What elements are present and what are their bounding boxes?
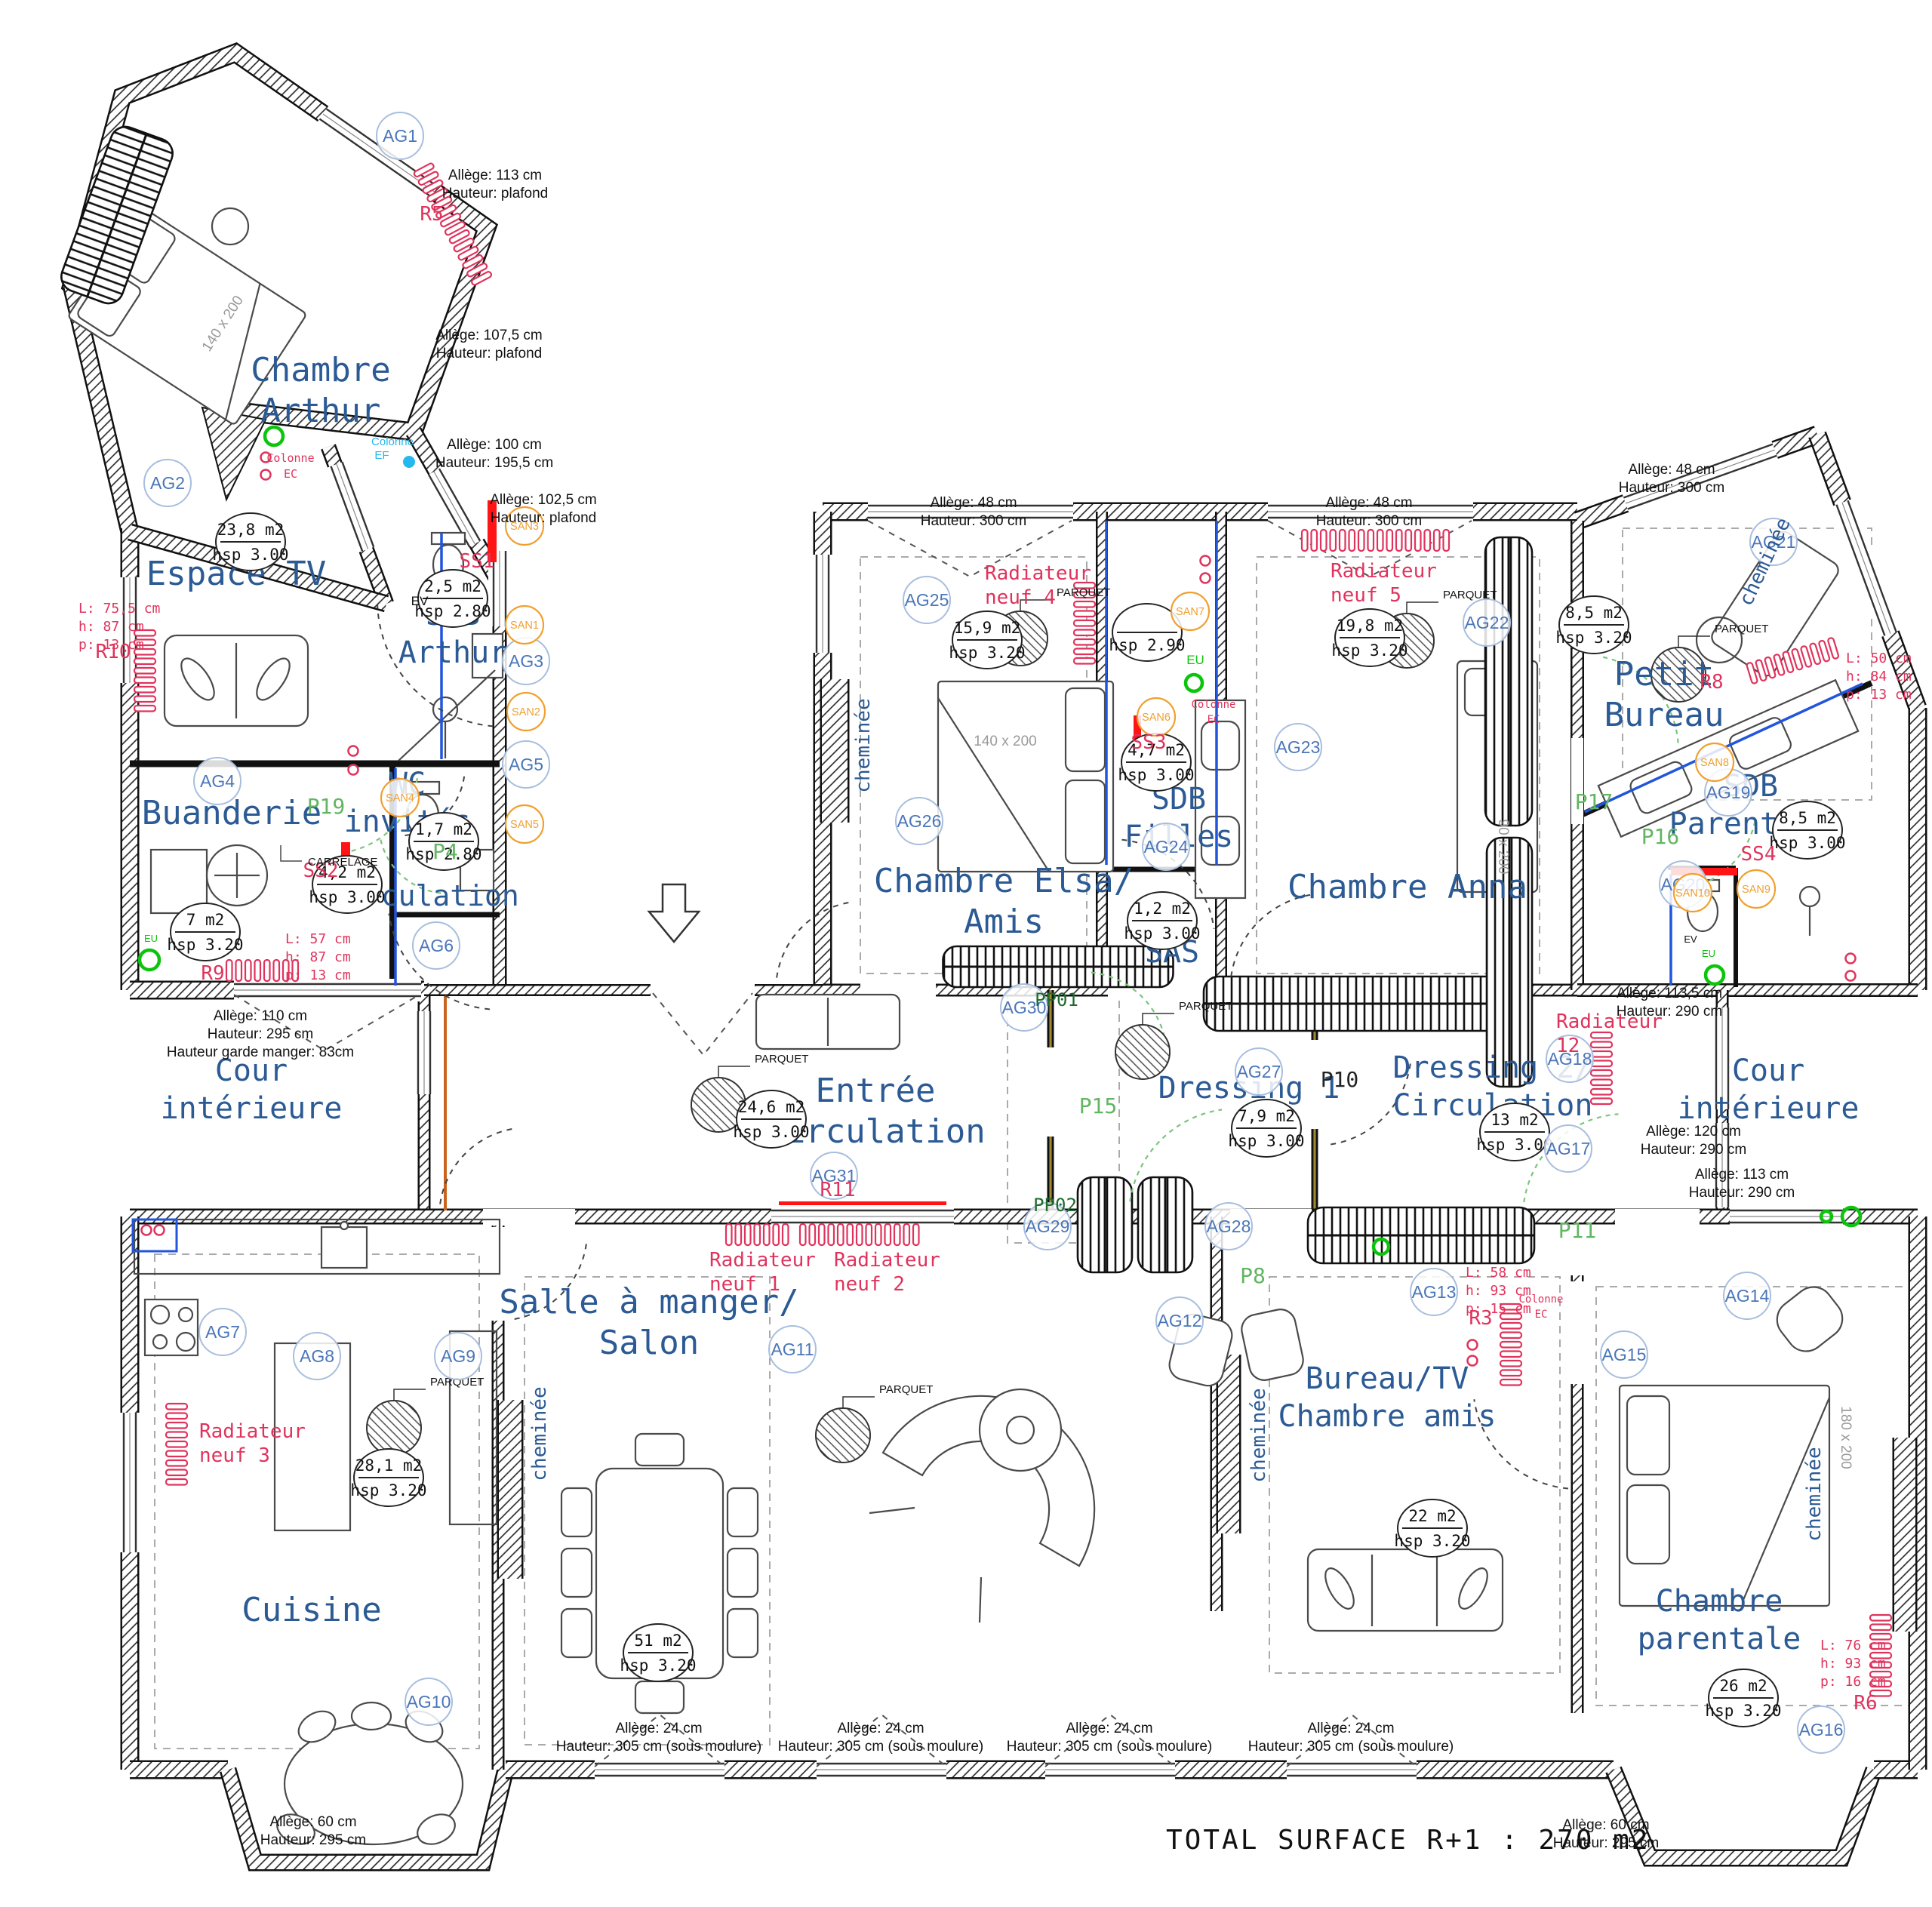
door-code-green: P15: [1079, 1093, 1118, 1118]
hsp-value: hsp 3.00: [1769, 834, 1845, 852]
red-annotation-line: SS1: [460, 550, 495, 573]
radiator-fin: [1074, 630, 1095, 636]
wardrobe-rack: [1078, 1177, 1132, 1272]
san-marker: SAN7: [1171, 592, 1209, 630]
radiator-fin: [866, 1224, 872, 1245]
radiator-fin: [1387, 530, 1393, 551]
door-opening: [1571, 1281, 1584, 1384]
radiator-fin: [245, 960, 251, 981]
room-label-line: Cour: [1732, 1053, 1804, 1088]
window: [1730, 1205, 1843, 1228]
ag-marker: AG24: [1143, 823, 1189, 870]
red-annotation: R11: [820, 1179, 856, 1201]
san-marker-id: SAN2: [512, 706, 540, 718]
san-marker-id: SAN9: [1742, 884, 1770, 896]
door-swing-arc: [1231, 894, 1313, 977]
window-note-line: Allège: 113 cm: [448, 168, 542, 183]
hsp-value: hsp 3.20: [949, 644, 1025, 662]
red-annotation-line: L: 50 cm: [1846, 651, 1912, 666]
window-note-line: Hauteur: 295 cm: [260, 1832, 366, 1848]
hsp-value: hsp 3.00: [212, 546, 288, 564]
radiator-fin: [885, 1224, 891, 1245]
ag-marker: AG16: [1798, 1706, 1844, 1753]
wardrobe-rack: [1138, 1177, 1192, 1272]
red-annotation: R8: [1700, 671, 1723, 694]
panel-code: PP02: [1033, 1195, 1077, 1216]
window-note-line: Hauteur: 300 cm: [1619, 480, 1724, 496]
colonne-dot: [349, 746, 358, 756]
window-note-line: Hauteur: 290 cm: [1617, 1004, 1722, 1020]
radiator-fin: [1500, 1352, 1521, 1358]
hsp-value: hsp 3.20: [1555, 629, 1632, 647]
window-note: Allège: 24 cmHauteur: 305 cm (sous moulu…: [556, 1721, 761, 1755]
ag-marker: AG3: [503, 638, 549, 684]
radiator-fin: [1312, 530, 1318, 551]
room-label: Chambreparentale: [1638, 1584, 1801, 1656]
radiator-fin: [800, 1224, 806, 1245]
wardrobe-rack: [1204, 977, 1521, 1031]
hsp-value: hsp 3.00: [733, 1123, 809, 1141]
red-annotation-line: EC: [1535, 1309, 1548, 1321]
window-note: Allège: 110 cmHauteur: 295 cmHauteur gar…: [167, 1008, 354, 1060]
red-annotation: L: 76 cmh: 93 cmp: 16 cm: [1820, 1638, 1886, 1690]
panel-code: PP01: [1035, 989, 1078, 1010]
door-code-green: P19: [307, 794, 346, 819]
window-note-line: Hauteur: plafond: [436, 346, 543, 361]
ag-marker-id: AG14: [1725, 1286, 1770, 1306]
radiator-fin: [1074, 658, 1095, 664]
radiator-fin: [166, 1413, 187, 1419]
san-marker-id: SAN1: [510, 620, 539, 632]
red-annotation-line: R8: [1700, 671, 1723, 694]
red-annotation-line: Colonne: [1191, 699, 1235, 711]
red-annotation: R9: [201, 962, 224, 985]
ag-marker: AG12: [1156, 1297, 1203, 1344]
radiator-fin: [783, 1224, 789, 1245]
room-label: Courintérieure: [1678, 1053, 1860, 1126]
area-value: 7,9 m2: [1238, 1107, 1295, 1125]
small-label: EV: [411, 594, 429, 608]
radiator-fin: [1500, 1379, 1521, 1386]
radiator-fin: [1591, 1042, 1612, 1048]
ag-marker-id: AG17: [1546, 1139, 1591, 1158]
hsp-value: hsp 3.20: [350, 1481, 426, 1499]
colonne-dot: [1201, 556, 1211, 566]
ag-marker-id: AG1: [383, 126, 417, 146]
area-badge: 23,8 m2hsp 3.00: [212, 513, 288, 571]
radiator-fin: [166, 1423, 187, 1429]
room-label-line: Chambre amis: [1278, 1399, 1497, 1434]
small-label: CARRELAGE: [308, 856, 378, 869]
san-marker-id: SAN5: [510, 819, 539, 831]
window: [771, 1205, 954, 1228]
colonne-dot: [1468, 1340, 1478, 1350]
ag-marker: AG17: [1545, 1125, 1592, 1172]
ag-marker-id: AG16: [1799, 1720, 1844, 1739]
window: [811, 555, 834, 653]
radiator-fin: [913, 1224, 919, 1245]
area-badge: 22 m2hsp 3.20: [1394, 1499, 1470, 1557]
window-note-line: Hauteur: 300 cm: [1316, 513, 1422, 529]
sofa-entree: [756, 995, 900, 1049]
ag-marker-id: AG5: [509, 755, 543, 774]
parquet-leader: [843, 1397, 875, 1408]
red-annotation-line: p: 13 cm: [78, 637, 144, 653]
radiator-fin: [1368, 530, 1374, 551]
ag-marker-id: AG12: [1158, 1311, 1202, 1330]
red-annotation-line: Radiateur: [834, 1249, 940, 1272]
parquet-label: PARQUET: [1179, 1000, 1232, 1013]
window-note-line: Allège: 24 cm: [837, 1721, 924, 1736]
radiator-fin: [1302, 530, 1308, 551]
radiator-fin: [1074, 639, 1095, 645]
red-annotation-line: R5: [420, 203, 443, 226]
radiator-fin: [166, 1460, 187, 1466]
ag-marker-id: AG24: [1144, 837, 1189, 857]
window-note-line: Allège: 48 cm: [930, 495, 1017, 511]
ag-marker-id: AG13: [1412, 1282, 1457, 1302]
room-label: Chambre Anna: [1287, 868, 1527, 906]
ag-marker-id: AG6: [419, 936, 454, 955]
radiator-fin: [875, 1224, 881, 1245]
ss-marker-bar: [779, 1201, 946, 1205]
hsp-value: hsp 3.20: [1394, 1532, 1470, 1550]
radiator-fin: [166, 1479, 187, 1485]
parquet-label: PARQUET: [1057, 586, 1110, 599]
ag-marker: AG22: [1463, 599, 1510, 646]
radiator-fin: [1870, 1625, 1891, 1631]
total-surface-label: TOTAL SURFACE R+1 : 270 m2: [1166, 1825, 1651, 1856]
radiator-fin: [1321, 530, 1327, 551]
dimension-label: 140 x 200: [974, 734, 1036, 749]
red-annotation-line: p: 13 cm: [1846, 687, 1912, 703]
red-annotation-line: h: 93 cm: [1820, 1656, 1886, 1672]
ag-marker: AG11: [769, 1326, 816, 1373]
radiator-fin: [838, 1224, 844, 1245]
parquet-swatch: [367, 1401, 421, 1455]
window-note-line: Allège: 110 cm: [214, 1008, 307, 1024]
door-code-green: P4: [432, 839, 458, 864]
radiator-fin: [1415, 530, 1421, 551]
red-annotation-line: neuf 2: [834, 1273, 905, 1296]
radiator-fin: [134, 659, 155, 665]
window-note-line: Hauteur: 195,5 cm: [435, 455, 553, 471]
radiator-fin: [274, 960, 280, 981]
window-note-line: Hauteur: 290 cm: [1689, 1185, 1795, 1201]
san-marker: SAN5: [506, 805, 543, 843]
window-note: Allège: 24 cmHauteur: 305 cm (sous moulu…: [1248, 1721, 1454, 1755]
ag-marker: AG15: [1601, 1331, 1647, 1378]
room-label-line: intérieure: [1678, 1091, 1860, 1126]
window-note-line: Hauteur: 290 cm: [1641, 1142, 1746, 1158]
radiator-fin: [226, 960, 232, 981]
red-annotation-line: L: 75,5 cm: [78, 601, 160, 617]
hsp-value: hsp 3.00: [1118, 766, 1194, 784]
sofa-espace-tv: [165, 635, 308, 726]
ag-marker: AG4: [194, 758, 241, 804]
ag-marker: AG1: [377, 112, 423, 159]
red-annotation-line: h: 84 cm: [1846, 669, 1912, 684]
radiator-fin: [1434, 530, 1440, 551]
wardrobe-rack: [1308, 1207, 1534, 1263]
red-annotation: R5: [420, 203, 443, 226]
window-note-line: Hauteur: 305 cm (sous moulure): [1007, 1739, 1212, 1755]
red-annotation-line: p: 13 cm: [285, 967, 351, 983]
window-note-line: Allège: 48 cm: [1325, 495, 1412, 511]
red-annotation-line: p: 16 cm: [1820, 1674, 1886, 1690]
radiator-fin: [1500, 1361, 1521, 1367]
area-badge: 15,9 m2hsp 3.20: [949, 611, 1025, 669]
red-annotation-line: L: 57 cm: [285, 931, 351, 947]
radiator-fin: [1500, 1370, 1521, 1376]
parquet-label: PARQUET: [879, 1383, 933, 1396]
san-marker: SAN9: [1737, 870, 1775, 908]
radiator-fin: [857, 1224, 863, 1245]
cheminee-label: cheminée: [1247, 1388, 1270, 1482]
wardrobe-rack: [943, 946, 1174, 987]
door-code: P10: [1321, 1067, 1359, 1092]
door-code-green: P11: [1558, 1218, 1597, 1243]
room-label-line: Amis: [964, 903, 1044, 941]
window: [1287, 1758, 1417, 1781]
red-annotation: L: 57 cmh: 87 cmp: 13 cm: [285, 931, 351, 983]
floor-plan-page: PARQUETPARQUETPARQUETPARQUETPARQUETPARQU…: [0, 0, 1932, 1907]
room-label-line: Chambre Elsa/: [874, 862, 1134, 900]
colonne-dot: [261, 470, 271, 480]
colonne-dot: [1846, 954, 1856, 964]
armchair-parentale: [1769, 1279, 1850, 1359]
window-note-line: Allège: 60 cm: [269, 1814, 356, 1830]
area-value: 8,5 m2: [1565, 604, 1623, 622]
radiator-fin: [726, 1224, 732, 1245]
room-label: Courintérieure: [161, 1053, 343, 1126]
radiator-fin: [236, 960, 242, 981]
ag-marker-id: AG26: [897, 811, 942, 831]
small-label: EU: [1186, 653, 1204, 667]
window-note-line: Allège: 120 cm: [1646, 1124, 1741, 1140]
san-marker: SAN2: [507, 693, 545, 731]
radiator-fin: [774, 1224, 780, 1245]
radiator-fin: [1074, 649, 1095, 655]
door-opening: [651, 981, 755, 999]
door-code-green: P8: [1240, 1263, 1266, 1288]
area-badge: 26 m2hsp 3.20: [1705, 1669, 1781, 1727]
red-annotation: ColonneEC: [266, 451, 314, 481]
area-value: 13 m2: [1491, 1111, 1538, 1129]
ag-marker: AG14: [1724, 1272, 1770, 1319]
radiator: [1591, 1032, 1612, 1104]
parquet-swatch: [816, 1408, 870, 1463]
red-annotation-line: neuf 4: [985, 586, 1056, 609]
hsp-value: hsp 3.00: [1124, 924, 1200, 943]
window-note: Allège: 24 cmHauteur: 305 cm (sous moulu…: [1007, 1721, 1212, 1755]
radiator-fin: [1074, 601, 1095, 607]
window-note-line: Allège: 113,5 cm: [1617, 986, 1722, 1001]
cheminee-label: cheminée: [528, 1386, 551, 1481]
radiator-fin: [755, 1224, 761, 1245]
room-label-line: Bureau: [1604, 696, 1724, 734]
radiator-fin: [134, 678, 155, 684]
window: [326, 460, 379, 553]
window-note-line: Hauteur: 305 cm (sous moulure): [556, 1739, 761, 1755]
window: [595, 1758, 724, 1781]
radiator-fin: [764, 1224, 770, 1245]
room-label: Bureau/TVChambre amis: [1278, 1361, 1497, 1434]
parquet-leader: [1407, 602, 1438, 614]
san-marker: SAN6: [1137, 698, 1175, 736]
radiator-fin: [1591, 1051, 1612, 1057]
radiator-fin: [736, 1224, 742, 1245]
red-annotation-line: Colonne: [266, 451, 314, 465]
ag-marker-id: AG10: [407, 1692, 451, 1712]
ag-marker-id: AG9: [441, 1346, 475, 1366]
radiator-fin: [1591, 1089, 1612, 1095]
area-badge: 28,1 m2hsp 3.20: [350, 1449, 426, 1506]
ag-marker: AG7: [199, 1309, 246, 1355]
window-note-line: Allège: 100 cm: [447, 437, 542, 453]
small-label: EU: [1702, 948, 1715, 959]
san-marker-id: SAN4: [386, 792, 414, 804]
window-note: Allège: 102,5 cmHauteur: plafond: [490, 492, 597, 526]
room-label-line: Arthur: [398, 635, 508, 670]
area-value: 15,9 m2: [954, 619, 1021, 637]
red-annotation: SS4: [1741, 843, 1777, 866]
san-marker: SAN8: [1696, 743, 1734, 781]
red-annotation: R6: [1854, 1692, 1877, 1715]
cheminee-label: cheminée: [1803, 1447, 1826, 1541]
ag-marker-id: AG25: [905, 590, 949, 610]
ag-marker-id: AG15: [1602, 1345, 1647, 1364]
bed-parentale: [1620, 1386, 1829, 1606]
radiator-fin: [1870, 1615, 1891, 1621]
cheminee-label: cheminée: [852, 698, 875, 792]
red-annotation: SS1: [460, 550, 495, 573]
ag-marker: AG27: [1235, 1048, 1282, 1095]
room-label-line: Bureau/TV: [1306, 1361, 1469, 1396]
red-annotation-line: Colonne: [1518, 1293, 1563, 1306]
san-marker: SAN4: [381, 779, 419, 817]
radiator-fin: [166, 1441, 187, 1447]
san-marker-id: SAN7: [1176, 606, 1204, 618]
parquet-symbol: PARQUET: [367, 1376, 484, 1455]
ag-marker: AG6: [413, 922, 460, 969]
dimension-label: 180 x 200: [1838, 1406, 1854, 1469]
area-badge: 1,2 m2hsp 3.00: [1124, 892, 1200, 949]
ag-marker: AG13: [1411, 1269, 1457, 1315]
window: [1832, 499, 1901, 638]
radiator-fin: [904, 1224, 910, 1245]
radiator-fin: [166, 1432, 187, 1438]
carrelage-leader: [281, 845, 302, 861]
red-annotation-line: neuf 3: [199, 1444, 270, 1467]
ag-marker-id: AG11: [771, 1340, 814, 1359]
colonne-dot: [1201, 574, 1211, 583]
ag-marker-id: AG8: [300, 1346, 334, 1366]
ag-marker: AG2: [144, 460, 191, 506]
radiator: [1302, 530, 1449, 551]
red-annotation-line: R6: [1854, 1692, 1877, 1715]
small-label: EU: [144, 933, 158, 944]
room-label: Cuisine: [241, 1591, 381, 1629]
parquet-label: PARQUET: [1715, 623, 1768, 635]
ag-marker: AG25: [903, 577, 950, 623]
ag-marker: AG5: [503, 741, 549, 788]
radiator: [166, 1404, 187, 1485]
window-note-line: Hauteur garde manger: 83cm: [167, 1044, 354, 1060]
san-marker-id: SAN10: [1675, 887, 1710, 900]
red-annotation-line: R11: [820, 1179, 856, 1201]
radiator-fin: [264, 960, 270, 981]
radiator-fin: [166, 1451, 187, 1457]
area-badge: 8,5 m2hsp 3.00: [1769, 801, 1845, 859]
area-value: 22 m2: [1408, 1507, 1456, 1525]
radiator-fin: [166, 1470, 187, 1476]
radiator-fin: [1591, 1032, 1612, 1038]
area-value: 51 m2: [634, 1632, 681, 1650]
red-annotation-line: R9: [201, 962, 224, 985]
san-marker-id: SAN8: [1700, 757, 1729, 769]
dimension-label: 90 x 200: [1495, 820, 1511, 875]
red-annotation: L: 58 cmh: 93 cmp: 15 cm: [1466, 1265, 1531, 1317]
ag-marker-id: AG2: [150, 473, 185, 493]
radiator-fin: [894, 1224, 900, 1245]
red-annotation-line: Radiateur: [1331, 560, 1437, 583]
red-annotation: Radiateurneuf 2: [834, 1249, 940, 1296]
ag-marker-id: AG4: [200, 771, 235, 791]
window: [316, 105, 441, 201]
area-badge: 19,8 m2hsp 3.20: [1331, 609, 1407, 666]
room-label-line: Entrée: [816, 1072, 936, 1110]
radiator-fin: [810, 1224, 816, 1245]
san-marker: SAN1: [506, 606, 543, 644]
hsp-value: hsp 3.00: [309, 888, 385, 906]
red-annotation: SS3: [1131, 731, 1167, 754]
radiator-fin: [255, 960, 261, 981]
ag-marker-id: AG23: [1276, 737, 1321, 757]
ag-marker: AG10: [405, 1678, 452, 1725]
radiator-fin: [1500, 1323, 1521, 1329]
room-label-line: Chambre: [1656, 1584, 1783, 1619]
radiator-fin: [1591, 1061, 1612, 1067]
room-label: Chambre Elsa/Amis: [874, 862, 1134, 941]
colonne-dot: [155, 1226, 165, 1235]
ag-marker: AG26: [896, 798, 943, 844]
area-value: 1,7 m2: [415, 820, 472, 838]
window-note-line: Allège: 107,5 cm: [435, 328, 543, 343]
room-label-line: Chambre: [251, 351, 390, 389]
colonne-dot: [142, 1226, 152, 1235]
area-badge: 7,9 m2hsp 3.00: [1228, 1100, 1304, 1157]
bed-elsa: [938, 681, 1113, 872]
radiator-fin: [1591, 1080, 1612, 1086]
ag-marker: AG9: [435, 1333, 481, 1379]
area-value: 26 m2: [1719, 1677, 1767, 1695]
area-badge: 8,5 m2hsp 3.20: [1555, 596, 1632, 654]
colonne-dot: [1468, 1356, 1478, 1366]
radiator-fin: [1349, 530, 1355, 551]
red-annotation-line: SS4: [1741, 843, 1777, 866]
red-annotation-line: neuf 5: [1331, 584, 1401, 607]
kitchen-fixtures: [134, 1220, 500, 1850]
radiator-fin: [134, 668, 155, 674]
window-note-line: Allège: 48 cm: [1628, 462, 1715, 478]
red-annotation-line: EC: [1207, 714, 1220, 726]
radiator-fin: [166, 1404, 187, 1410]
parquet-symbol: PARQUET: [1115, 1000, 1232, 1079]
window-note: Allège: 113,5 cmHauteur: 290 cm: [1617, 986, 1722, 1020]
colonne-dot: [349, 765, 358, 775]
area-value: 19,8 m2: [1337, 617, 1404, 635]
